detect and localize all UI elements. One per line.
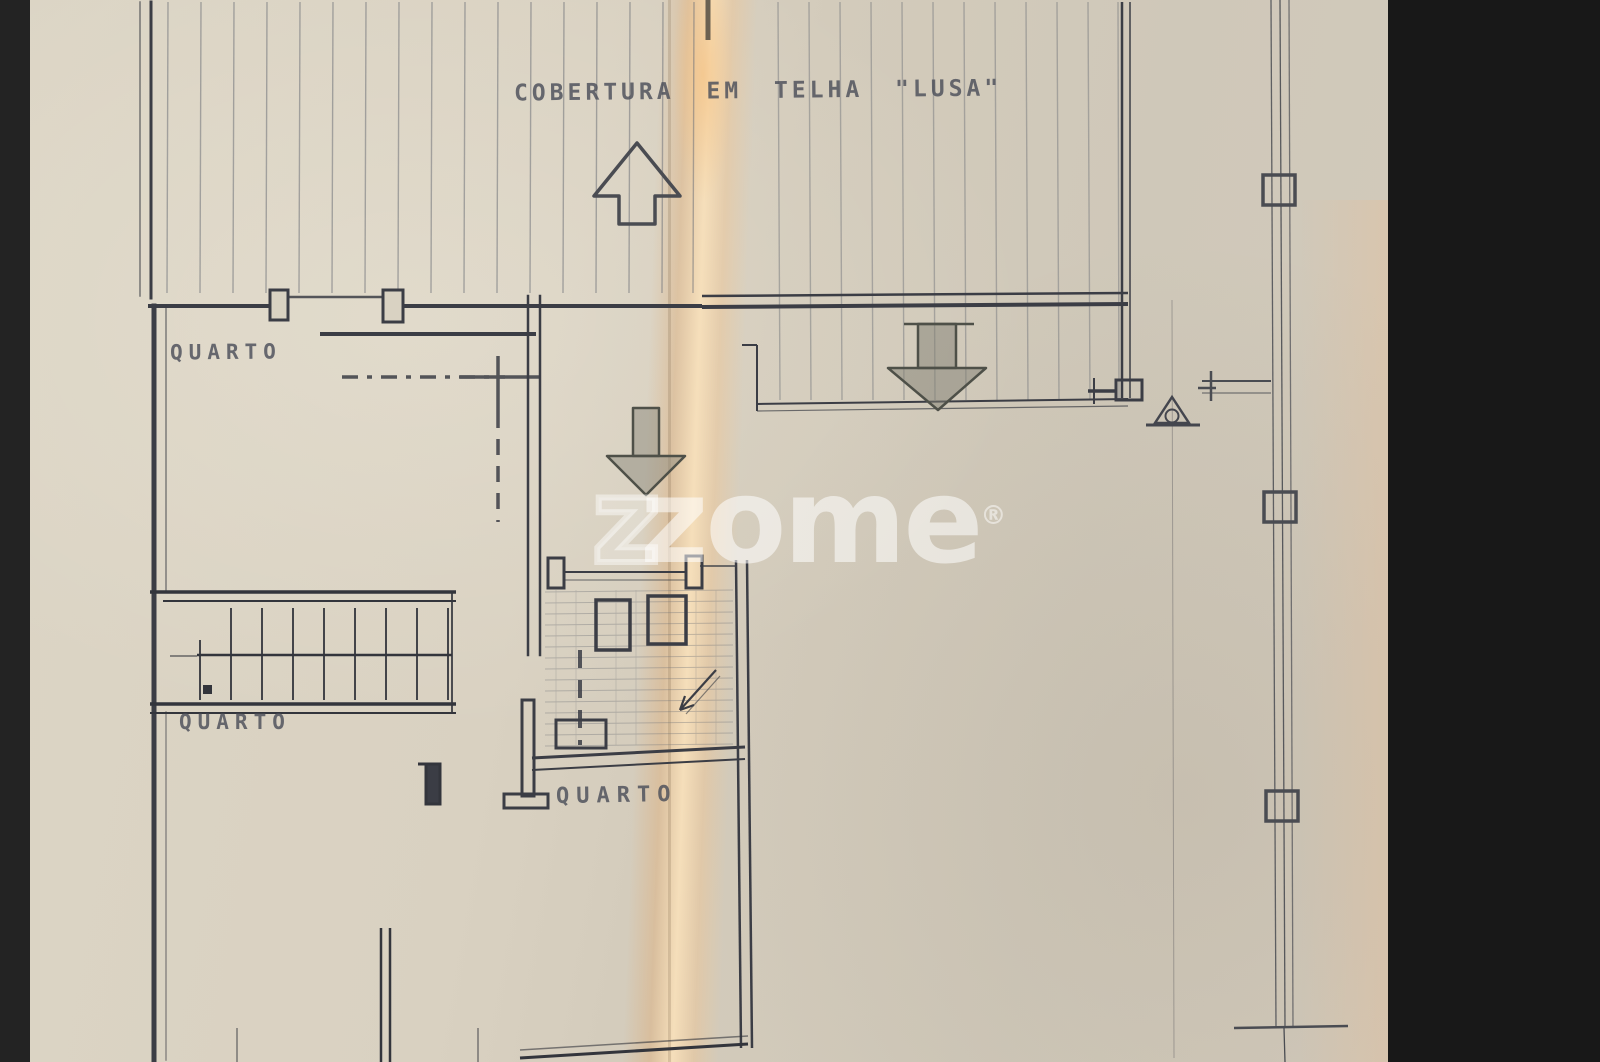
zome-watermark: zzome® xyxy=(592,452,1006,590)
center-hatch xyxy=(545,590,733,746)
up-arrow-icon xyxy=(594,143,680,224)
room-label-quarto-2: QUARTO xyxy=(179,710,291,734)
room-label-quarto-1: QUARTO xyxy=(170,340,282,365)
datum-triangle-icon xyxy=(1146,300,1200,1058)
boundary-line xyxy=(1198,0,1348,1062)
staircase-left xyxy=(150,592,456,713)
photo-frame: COBERTURA EM TELHA "LUSA" QUARTO QUARTO … xyxy=(0,0,1600,1062)
stair-direction-arrow xyxy=(680,670,720,714)
walls-bottom-rooms xyxy=(237,764,748,1062)
watermark-text: zome xyxy=(640,452,981,590)
letterbox-left xyxy=(0,0,30,1062)
roof-hatch-left xyxy=(167,2,694,293)
boundary-post xyxy=(1266,791,1298,821)
letterbox-right xyxy=(1388,0,1600,1062)
room-label-quarto-3: QUARTO xyxy=(556,782,678,809)
dashed-lines xyxy=(342,356,540,522)
roof-material-note: COBERTURA EM TELHA "LUSA" xyxy=(514,75,1002,106)
down-arrow-right-icon xyxy=(888,324,986,410)
registered-trademark-icon: ® xyxy=(980,501,1006,531)
